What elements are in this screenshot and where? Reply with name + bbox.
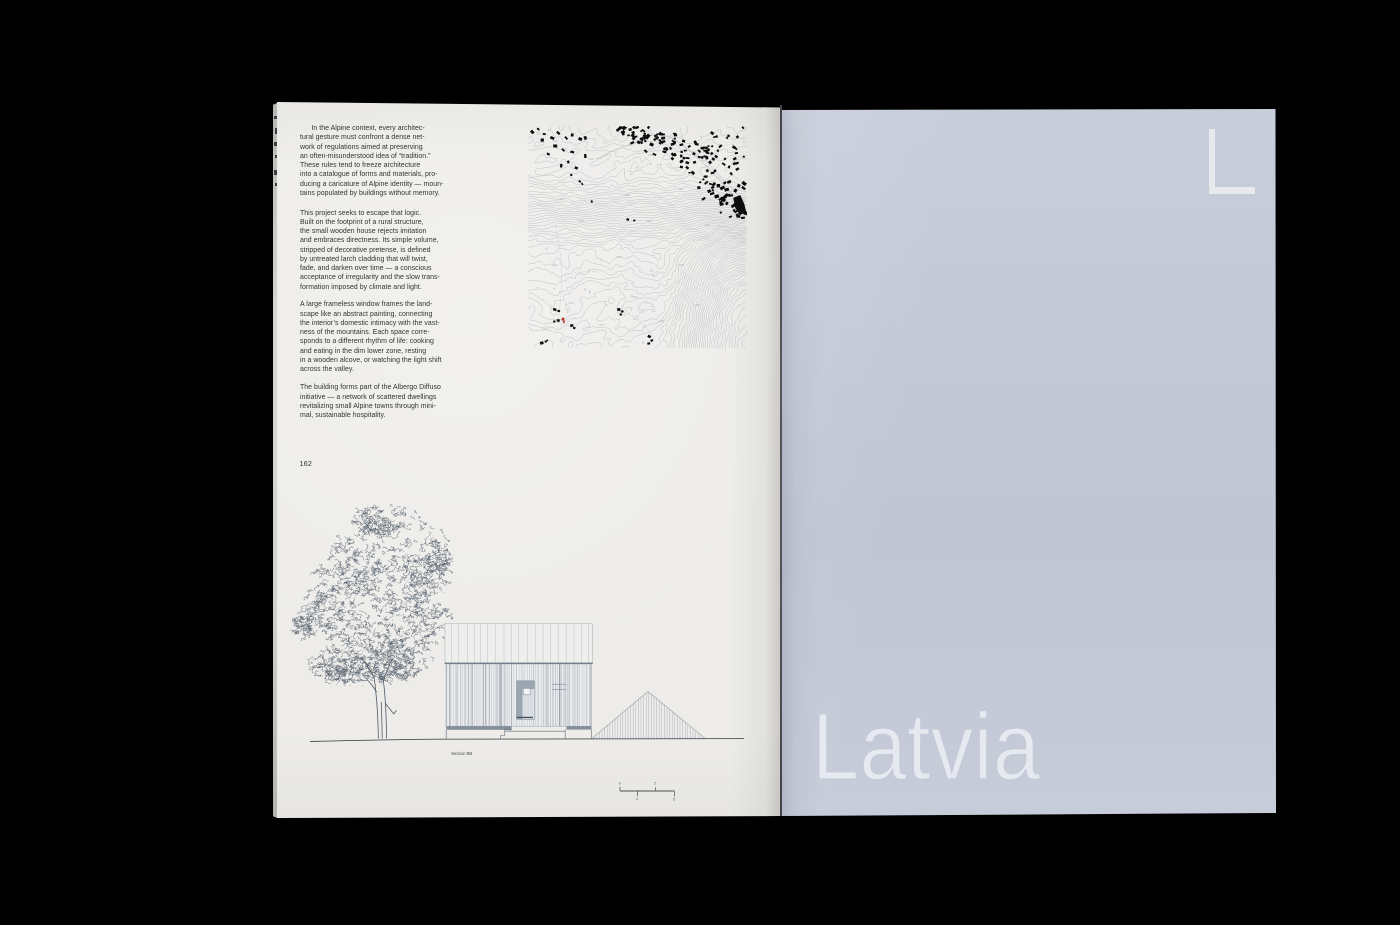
svg-text:0: 0 — [619, 781, 621, 785]
svg-text:1181: 1181 — [646, 219, 652, 223]
svg-text:1: 1 — [636, 797, 638, 801]
svg-text:1272: 1272 — [542, 327, 548, 331]
svg-text:1215: 1215 — [552, 263, 558, 267]
svg-text:1163: 1163 — [678, 187, 684, 191]
svg-text:1266: 1266 — [694, 303, 700, 307]
svg-text:1190: 1190 — [704, 223, 710, 227]
svg-text:1227: 1227 — [616, 255, 622, 259]
svg-text:2: 2 — [654, 781, 656, 785]
svg-text:1178: 1178 — [578, 219, 584, 223]
svg-text:1238: 1238 — [678, 263, 684, 267]
svg-text:1251: 1251 — [568, 301, 574, 305]
svg-text:1107: 1107 — [588, 157, 594, 161]
svg-text:1283: 1283 — [658, 319, 664, 323]
svg-text:Section BB: Section BB — [451, 751, 472, 756]
svg-text:1259: 1259 — [632, 295, 638, 299]
svg-text:1140: 1140 — [558, 197, 564, 201]
svg-text:5: 5 — [673, 798, 675, 802]
svg-text:1152: 1152 — [624, 193, 630, 197]
svg-text:1278: 1278 — [598, 323, 604, 327]
